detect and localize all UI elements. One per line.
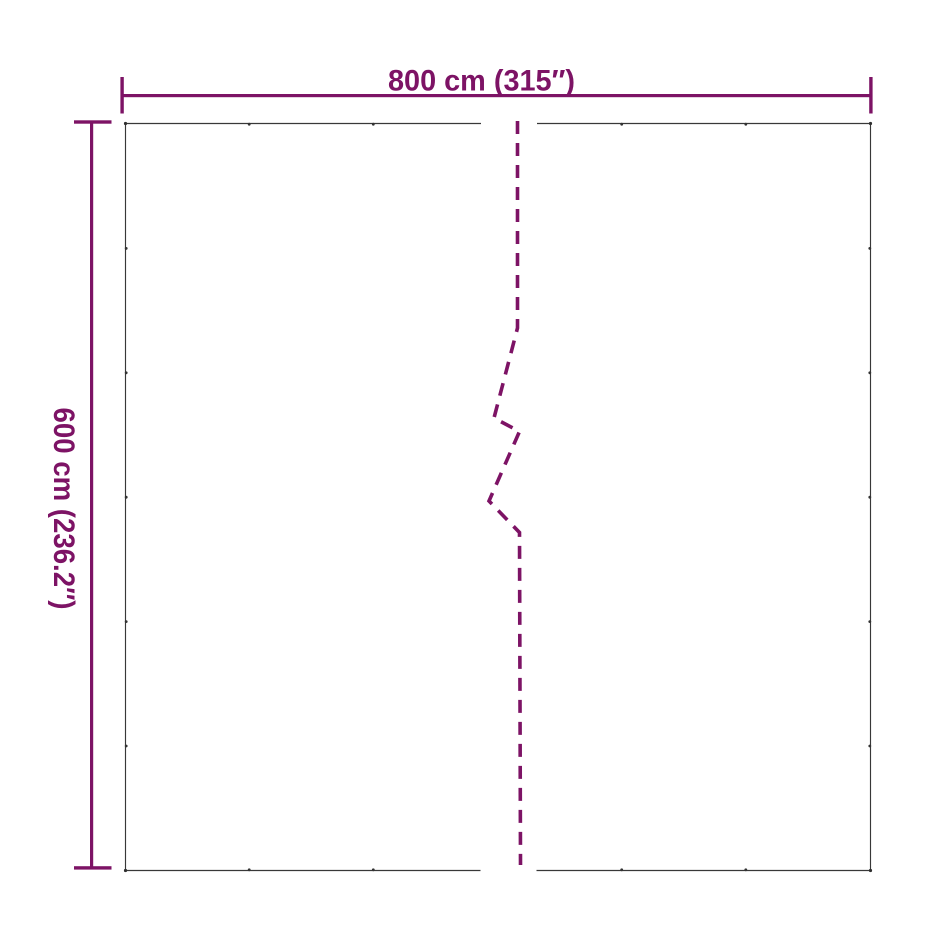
svg-text:600 cm (236.2″): 600 cm (236.2″) — [47, 408, 80, 610]
svg-text:800 cm (315″): 800 cm (315″) — [388, 64, 575, 97]
